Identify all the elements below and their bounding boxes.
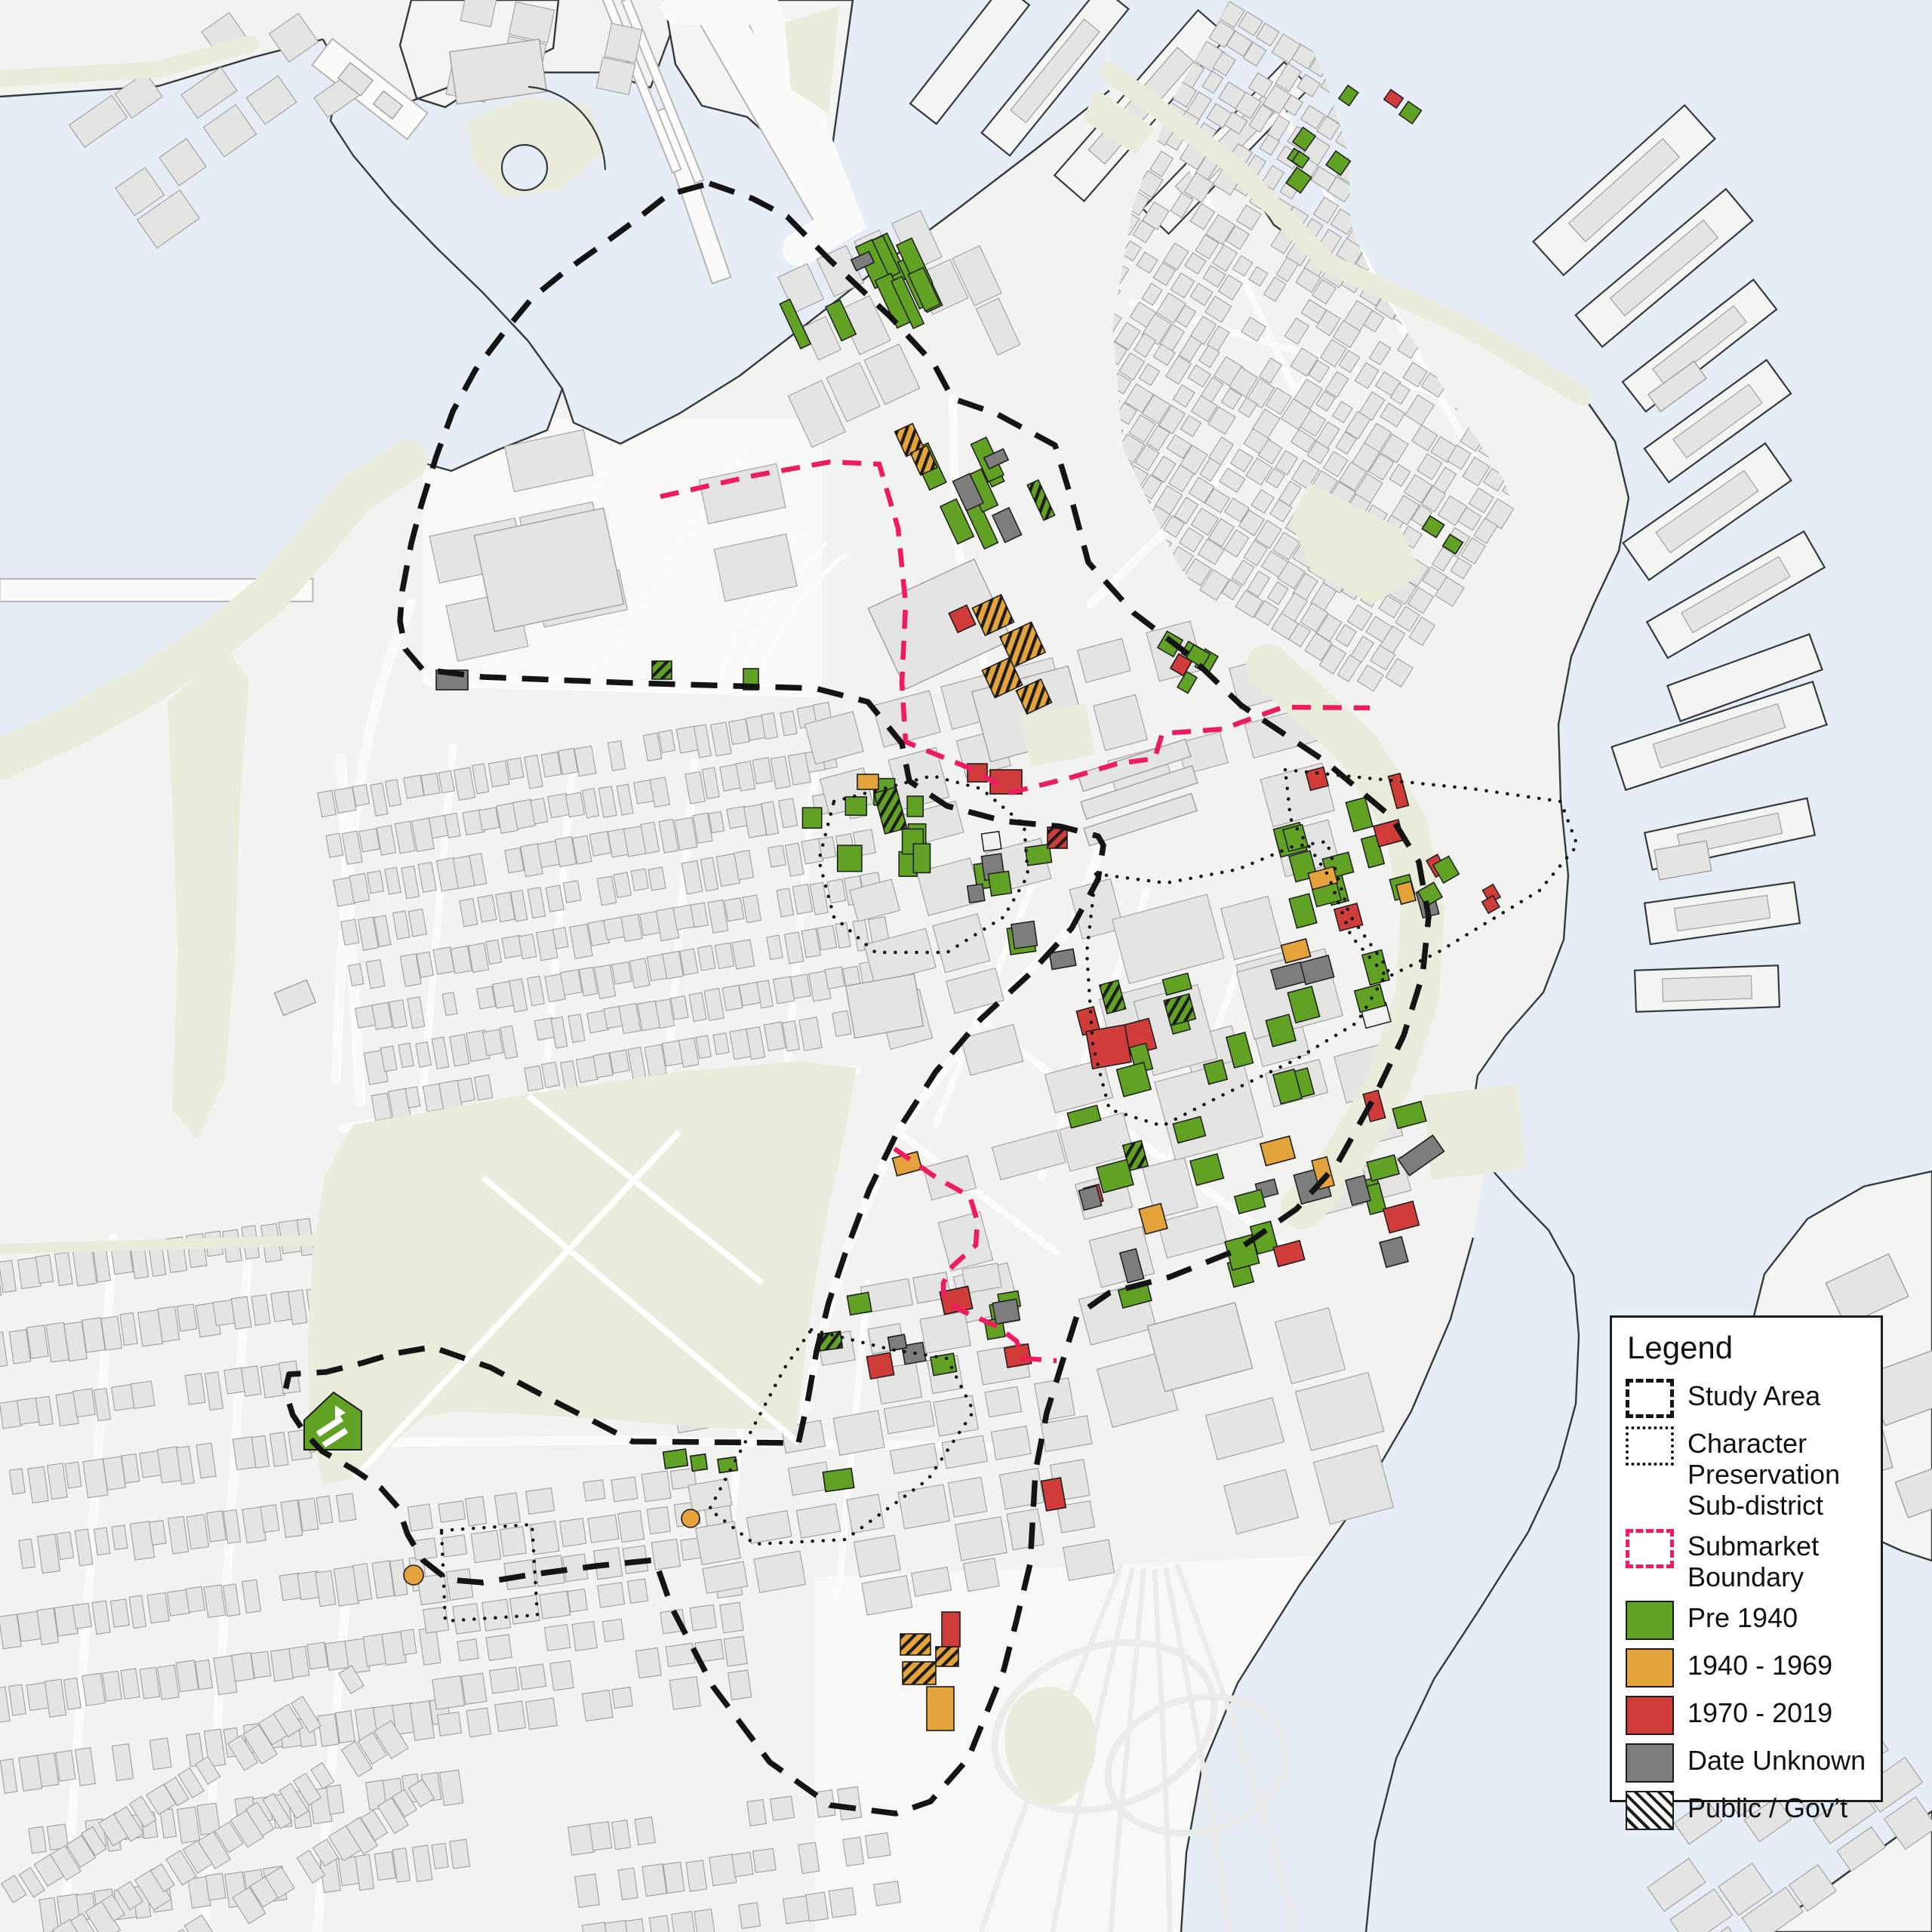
legend-item-1970-2019: 1970 - 2019 xyxy=(1626,1694,1867,1735)
legend-item-1940-1969: 1940 - 1969 xyxy=(1626,1647,1867,1687)
public-govt-swatch-icon xyxy=(1626,1791,1674,1830)
legend-title: Legend xyxy=(1627,1330,1867,1366)
legend-item-date-unknown: Date Unknown xyxy=(1626,1742,1867,1783)
date-unknown-swatch-icon xyxy=(1626,1743,1674,1783)
character-preservation-swatch-icon xyxy=(1626,1426,1674,1466)
map-stage: Legend Study Area Character Preservation… xyxy=(0,0,1932,1932)
1970-2019-swatch-icon xyxy=(1626,1696,1674,1735)
map-legend: Legend Study Area Character Preservation… xyxy=(1610,1315,1883,1802)
study-area-swatch-icon xyxy=(1626,1379,1674,1418)
legend-item-submarket-boundary: Submarket Boundary xyxy=(1626,1527,1867,1592)
legend-item-study-area: Study Area xyxy=(1626,1377,1867,1418)
legend-item-pre-1940: Pre 1940 xyxy=(1626,1599,1867,1640)
legend-item-public-govt: Public / Gov’t xyxy=(1626,1789,1867,1830)
pre-1940-swatch-icon xyxy=(1626,1601,1674,1640)
submarket-boundary-swatch-icon xyxy=(1626,1529,1674,1568)
legend-item-character-preservation: Character Preservation Sub-district xyxy=(1626,1425,1867,1521)
1940-1969-swatch-icon xyxy=(1626,1648,1674,1687)
